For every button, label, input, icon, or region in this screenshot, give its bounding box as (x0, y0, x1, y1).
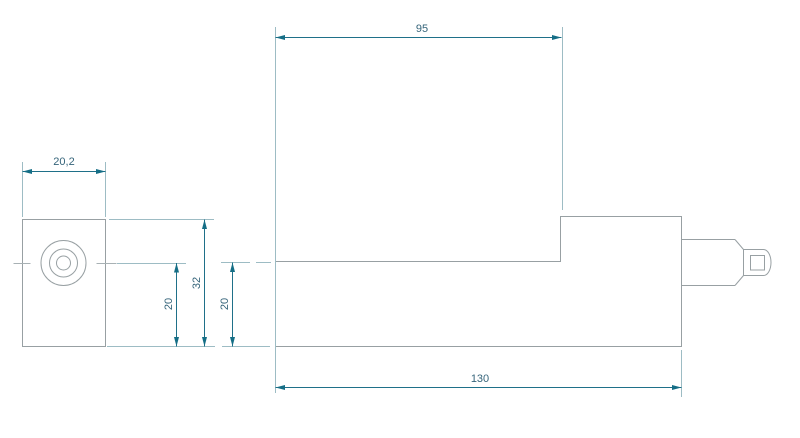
dim-side-upper-length: 95 (276, 23, 562, 40)
extension-lines (23, 27, 682, 397)
front-view (14, 220, 117, 347)
dim-side-overall-length-arrow-right (672, 385, 682, 390)
front-hole-circle (57, 256, 71, 270)
dim-side-overall-length-arrow-left (276, 385, 286, 390)
dim-side-overall-length: 130 (276, 373, 682, 390)
plug-socket-rect (751, 256, 765, 271)
front-boss-outer-circle (41, 241, 86, 286)
front-boss-middle-circle (50, 249, 78, 277)
dim-side-upper-length-arrow-right (552, 35, 562, 40)
front-view-body-outline (23, 220, 106, 347)
dim-front-height-label: 32 (191, 277, 203, 289)
dim-front-hole-height-arrow-top (174, 263, 179, 273)
shaft-chamfer-top (735, 240, 744, 250)
dim-front-height-arrow-top (202, 220, 207, 230)
dim-side-step-height: 20 (219, 263, 235, 347)
technical-drawing-canvas: 20,2 20 32 20 95 130 (0, 0, 800, 438)
dim-side-upper-length-label: 95 (416, 23, 428, 35)
dim-front-hole-height: 20 (163, 263, 179, 347)
drawing-svg: 20,2 20 32 20 95 130 (0, 0, 800, 438)
dim-front-hole-height-arrow-bottom (174, 337, 179, 347)
dim-front-width-label: 20,2 (53, 156, 74, 168)
dim-side-step-height-arrow-top (230, 263, 235, 273)
dim-front-width-arrow-right (96, 169, 106, 174)
dim-front-height: 32 (191, 220, 207, 347)
side-view (276, 217, 772, 347)
shaft-chamfer-bottom (735, 276, 744, 286)
side-view-body-outline (276, 217, 682, 347)
dim-front-width-arrow-left (23, 169, 33, 174)
dim-front-height-arrow-bottom (202, 337, 207, 347)
dim-side-overall-length-label: 130 (471, 373, 489, 385)
dim-front-hole-height-label: 20 (163, 298, 175, 310)
dim-front-width: 20,2 (23, 156, 106, 174)
dim-side-upper-length-arrow-left (276, 35, 286, 40)
dim-side-step-height-label: 20 (219, 298, 231, 310)
dim-side-step-height-arrow-bottom (230, 337, 235, 347)
